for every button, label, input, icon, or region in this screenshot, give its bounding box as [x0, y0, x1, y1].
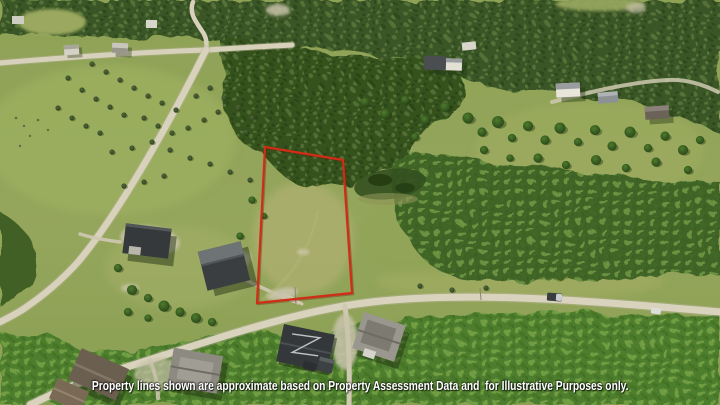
house-topleft-4 — [12, 16, 24, 24]
barn-shop-1 — [121, 223, 177, 266]
van-on-road — [547, 293, 563, 302]
house-topleft-3 — [146, 20, 157, 28]
shed-top-center — [462, 41, 477, 50]
aerial-photo — [0, 0, 720, 405]
listing-photo: Property lines shown are approximate bas… — [0, 0, 720, 405]
house-right-2 — [598, 91, 619, 104]
